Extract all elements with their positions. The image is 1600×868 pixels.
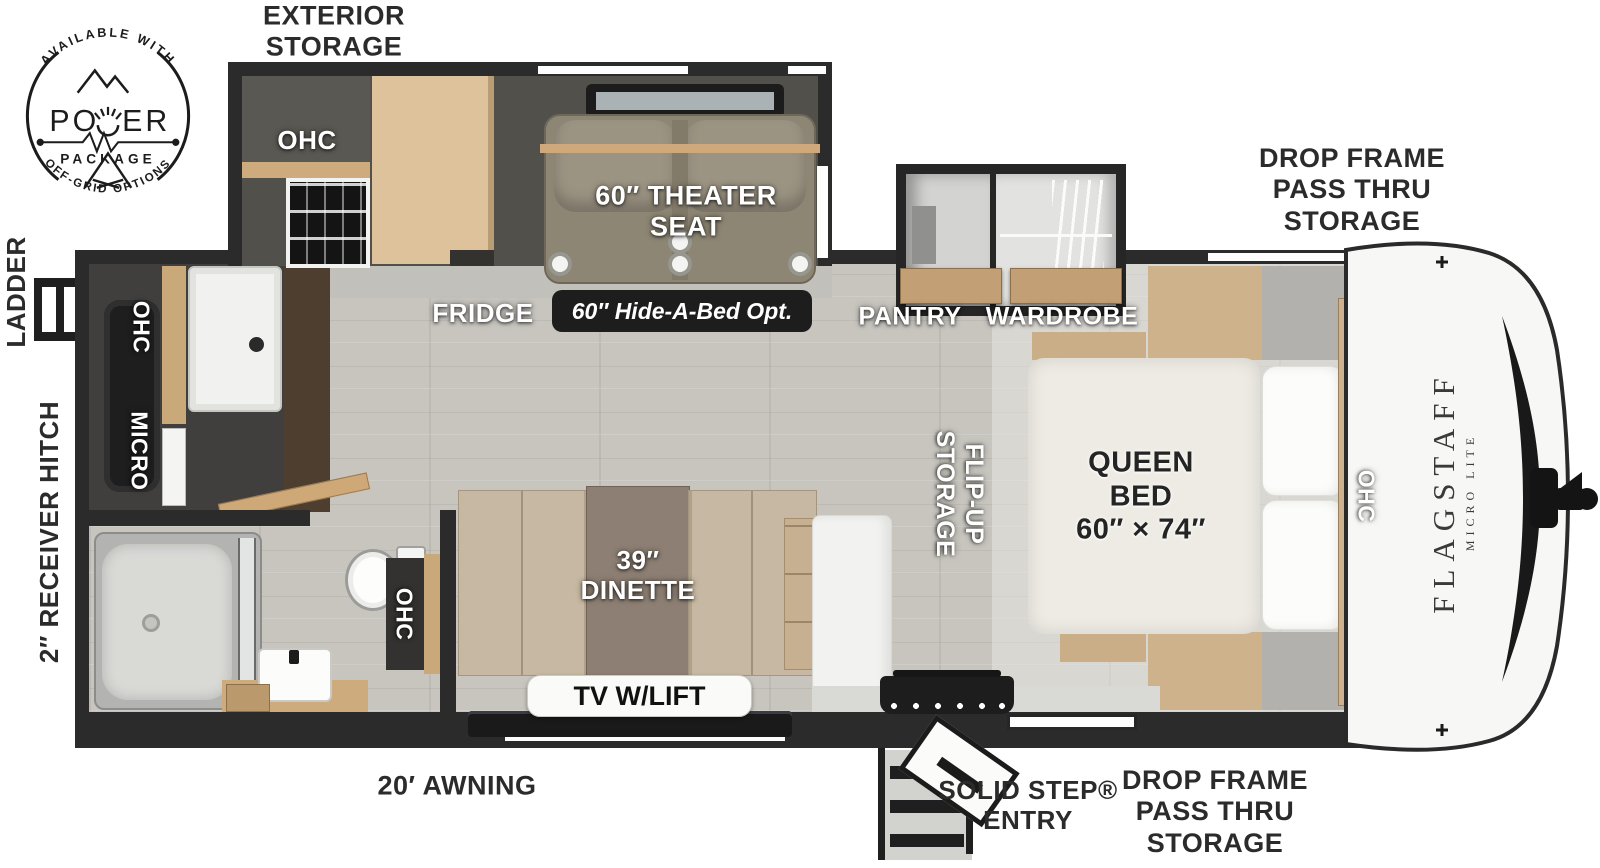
exterior-storage-label: EXTERIOR STORAGE [263,1,405,64]
badge-power-right: ER [122,105,170,138]
bath-ohc-shelf [424,554,440,674]
theater-seat-label: 60″ THEATER SEAT [595,181,776,244]
exterior-ohc-label: OHC [277,125,336,155]
hide-a-bed-pill: 60″ Hide-A-Bed Opt. [552,290,812,332]
flagstaff-branding: FLAGSTAFF MICRO LITE [1426,370,1478,614]
sun-icon [98,125,118,135]
micro-label: MICRO [126,411,153,490]
pantry-label: PANTRY [859,303,962,332]
badge-power-left: PO [49,105,99,138]
mountains-icon [78,70,129,92]
tv-lift-label: TV W/LIFT [574,681,706,712]
rear-sink [188,266,282,412]
bed-ohc-label: OHC [1353,470,1380,523]
shower-drain-icon [142,614,160,632]
queen-bed-label: QUEEN BED 60″ × 74″ [1076,447,1206,548]
counter-ledge [450,250,494,266]
dinette-bench-left [458,490,588,676]
cupholder [788,252,812,276]
flagstaff-name: FLAGSTAFF [1426,370,1462,614]
bed-floor-patch [1262,266,1344,360]
power-package-badge: AVAILABLE WITH OFF-GRID OPTIONS PO ER PA… [22,28,194,204]
fridge-label: FRIDGE [432,298,533,328]
wall-left [75,250,89,748]
flip-shelf-right [1010,268,1122,304]
faucet-icon [249,337,264,352]
wardrobe-label: WARDROBE [986,303,1139,332]
solid-step-entry-label: SOLID STEP® ENTRY [938,775,1117,835]
ladder-rung [34,278,42,341]
bathroom-wall-divider [440,510,456,712]
shower-pan [102,544,232,700]
rear-ohc-shelf [162,266,186,424]
bath-ohc-label: OHC [391,588,418,641]
bed-floor-patch [1262,632,1344,710]
receiver-hitch-label: 2″ RECEIVER HITCH [34,401,64,663]
pantry-shelf-box [912,206,936,264]
awning-label: 20′ AWNING [378,770,537,801]
bed-pillow [1262,366,1344,496]
bed-base-strip [1032,332,1146,360]
rear-cabinet-column [284,264,330,512]
cooktop-handle [893,670,1001,677]
badge-arc-top-text: AVAILABLE WITH [38,28,179,68]
tv-lift-pill: TV W/LIFT [527,675,752,717]
dinette-label: 39″ DINETTE [581,545,696,605]
flip-shelf-left [900,268,1002,304]
cupholder [548,252,572,276]
floorplan-canvas: AVAILABLE WITH OFF-GRID OPTIONS PO ER PA… [0,0,1600,868]
ladder-label: LADDER [1,236,31,347]
theater-seat-trim-bar [540,144,820,153]
bed-pillow [1262,500,1344,630]
upper-bay-side-door [817,166,828,258]
galley-counter-block [372,76,494,264]
flagstaff-series: MICRO LITE [1464,370,1478,614]
bed-base-strip [1060,632,1146,662]
griddle [286,178,370,268]
kitchen-window [1007,714,1137,730]
flip-up-storage-label: FLIP-UP STORAGE [930,431,988,558]
bath-wood-box [226,684,270,712]
upper-bay-window-2 [788,66,826,74]
cooktop [880,676,1014,714]
upper-bay-window-1 [538,66,688,74]
theater-seat-window-glass [596,92,774,110]
bed-nightstand-top [1148,266,1262,360]
drop-frame-top-label: DROP FRAME PASS THRU STORAGE [1259,143,1445,237]
bathroom-wall-top [89,510,310,526]
rear-ohc-label: OHC [128,301,155,354]
cupholder [668,252,692,276]
microwave [162,428,186,506]
bed-nightstand-bottom [1148,632,1262,710]
hide-a-bed-label: 60″ Hide-A-Bed Opt. [572,298,793,325]
step-tread [890,834,964,847]
bath-faucet-icon [289,650,299,664]
kitchen-bench-back [784,518,814,670]
drop-frame-bottom-label: DROP FRAME PASS THRU STORAGE [1122,765,1308,859]
step-rail [878,748,885,860]
ladder-rung [56,278,64,341]
exterior-ohc-shelf [242,162,370,178]
bedroom-window [1208,253,1350,261]
